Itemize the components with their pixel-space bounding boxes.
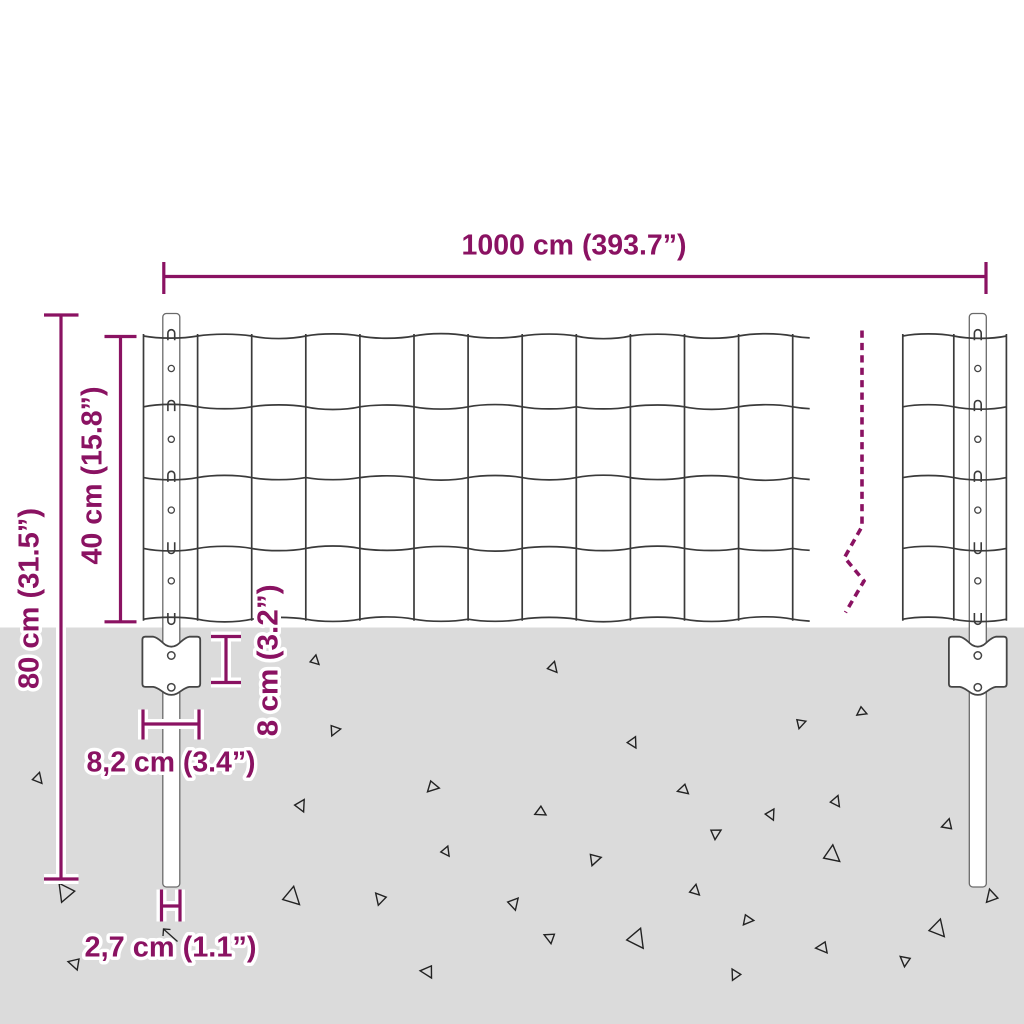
svg-text:1000 cm (393.7”): 1000 cm (393.7”) [462, 230, 687, 262]
svg-text:80 cm (31.5”): 80 cm (31.5”) [14, 508, 46, 689]
svg-text:2,7 cm (1.1”): 2,7 cm (1.1”) [85, 932, 257, 964]
svg-text:8 cm (3.2”): 8 cm (3.2”) [253, 584, 285, 736]
svg-text:40 cm (15.8”): 40 cm (15.8”) [77, 387, 109, 565]
svg-text:8,2 cm (3.4”): 8,2 cm (3.4”) [87, 747, 256, 779]
